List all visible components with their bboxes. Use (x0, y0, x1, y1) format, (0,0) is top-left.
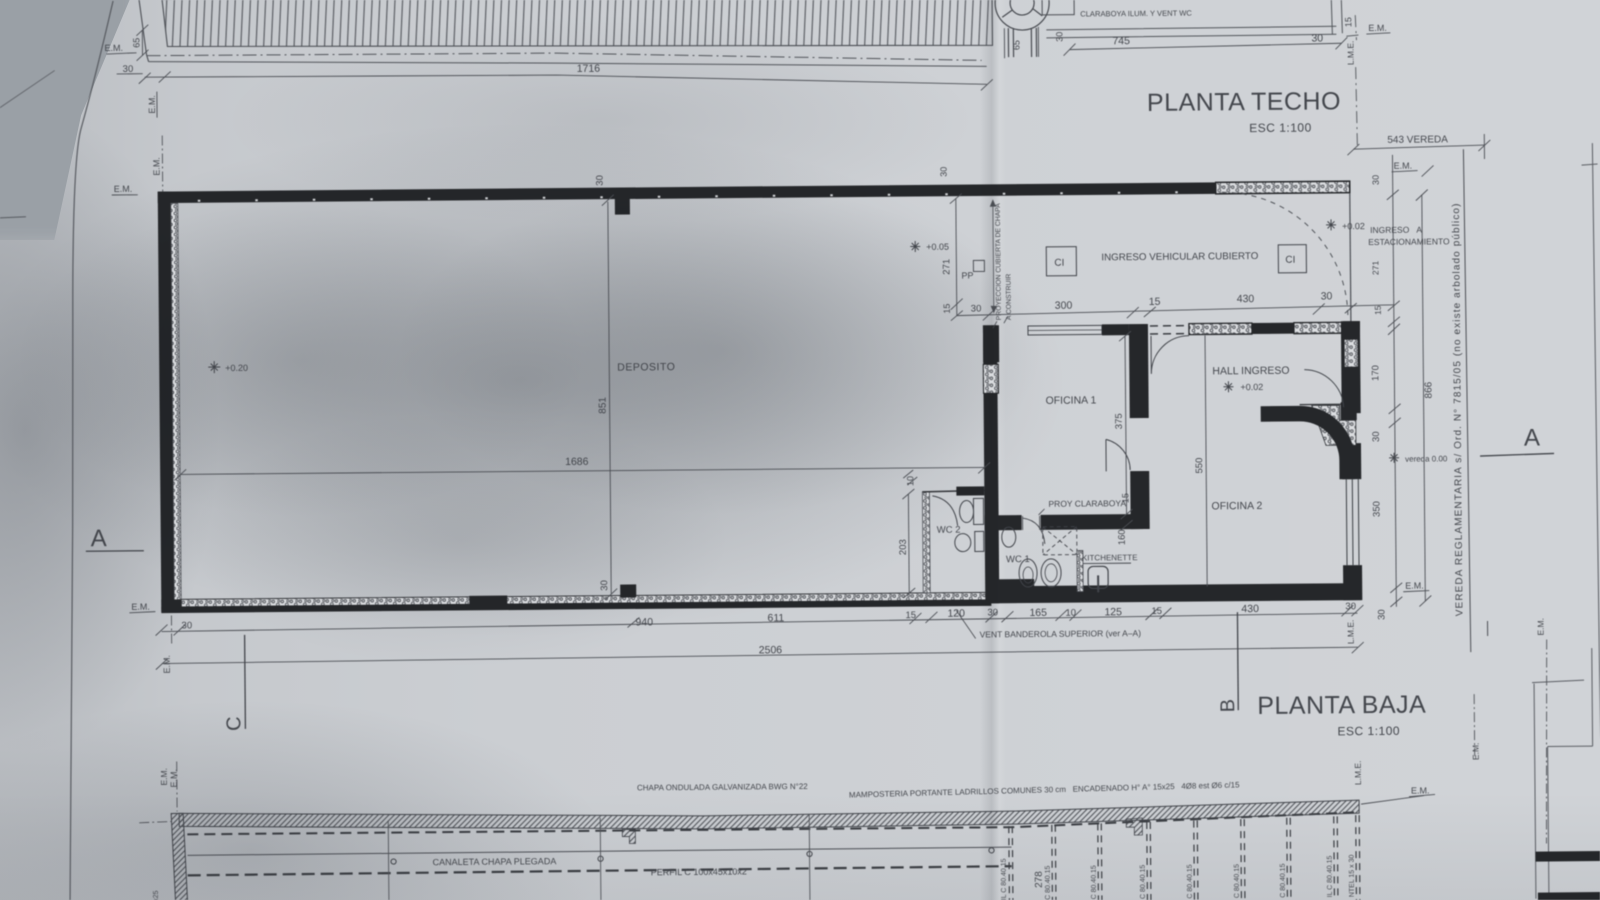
svg-text:E.M.: E.M. (1405, 581, 1424, 591)
svg-text:KITCHENETTE: KITCHENETTE (1082, 553, 1138, 562)
svg-text:CHAPA ONDULADA GALVANIZADA: CHAPA ONDULADA GALVANIZADA BWG N°22 (637, 782, 808, 792)
svg-text:203: 203 (898, 539, 909, 555)
svg-text:15: 15 (1149, 296, 1161, 308)
svg-text:HALL INGRESO: HALL INGRESO (1212, 365, 1289, 378)
svg-text:PERFIL C 100x45x10x2: PERFIL C 100x45x10x2 (651, 866, 747, 877)
svg-text:30: 30 (939, 167, 949, 177)
svg-text:1686: 1686 (565, 456, 589, 468)
svg-text:E.M.: E.M. (1471, 743, 1481, 761)
svg-text:160: 160 (1117, 529, 1128, 545)
svg-text:NTEL 15 x 30: NTEL 15 x 30 (1349, 855, 1356, 898)
svg-text:10: 10 (905, 476, 915, 486)
svg-text:430: 430 (1241, 603, 1259, 615)
svg-text:10: 10 (1065, 608, 1076, 619)
svg-text:C 80.40.15: C 80.40.15 (1187, 864, 1194, 898)
svg-text:C 80.40.15: C 80.40.15 (1045, 865, 1052, 899)
svg-text:+0.02: +0.02 (1342, 221, 1365, 231)
svg-text:IL C 80.40.15: IL C 80.40.15 (1327, 855, 1334, 897)
svg-text:611: 611 (767, 612, 784, 624)
svg-text:+0.02: +0.02 (1240, 382, 1263, 392)
svg-text:15: 15 (1373, 305, 1383, 315)
svg-text:INGRESO A: INGRESO A (1370, 225, 1422, 235)
svg-text:E.M.: E.M. (162, 655, 172, 674)
svg-text:15: 15 (1151, 606, 1162, 617)
svg-text:866: 866 (1423, 381, 1434, 398)
svg-text:A: A (91, 525, 107, 552)
svg-text:CANALETA CHAPA PLEGADA: CANALETA CHAPA PLEGADA (433, 856, 557, 867)
svg-text:ESC 1:100: ESC 1:100 (1249, 121, 1312, 136)
svg-text:15: 15 (942, 304, 952, 314)
svg-text:vereda 0.00: vereda 0.00 (1405, 454, 1448, 463)
svg-text:VEREDA REGLAMENTARIA s/ Ord. N: VEREDA REGLAMENTARIA s/ Ord. N° 7815/05 … (1451, 202, 1466, 616)
svg-text:PLANTA TECHO: PLANTA TECHO (1147, 87, 1341, 117)
svg-text:L.M.E.: L.M.E. (1345, 41, 1355, 66)
svg-text:30: 30 (987, 607, 998, 618)
svg-text:5x25: 5x25 (153, 890, 160, 900)
svg-text:30: 30 (123, 64, 134, 75)
svg-text:1716: 1716 (577, 63, 601, 75)
svg-text:30: 30 (181, 620, 192, 631)
svg-text:15: 15 (1120, 493, 1130, 503)
svg-text:125: 125 (1104, 606, 1122, 618)
svg-text:C 80.40.15: C 80.40.15 (1234, 864, 1241, 898)
svg-text:15: 15 (905, 610, 916, 621)
svg-text:E.M.: E.M. (151, 157, 161, 176)
svg-text:WC 1: WC 1 (1006, 554, 1030, 565)
svg-text:65: 65 (131, 38, 141, 48)
svg-text:30: 30 (1371, 431, 1382, 442)
svg-text:DEPOSITO: DEPOSITO (617, 361, 675, 374)
svg-text:30: 30 (1371, 175, 1381, 185)
svg-text:C 80.40.15: C 80.40.15 (1140, 865, 1147, 899)
svg-text:C 80.40.15: C 80.40.15 (1280, 863, 1287, 897)
svg-text:VENT BANDEROLA SUPERIOR (ve: VENT BANDEROLA SUPERIOR (ver A–A) (980, 628, 1142, 639)
svg-text:2506: 2506 (759, 644, 783, 656)
svg-text:L.M.E.: L.M.E. (1353, 761, 1363, 786)
svg-text:PROY CLARABOYA: PROY CLARABOYA (1048, 498, 1126, 509)
svg-text:165: 165 (1029, 607, 1047, 619)
svg-text:30: 30 (1345, 601, 1356, 612)
svg-text:271: 271 (1370, 260, 1380, 275)
svg-text:30: 30 (1311, 32, 1323, 44)
svg-text:L.M.E.: L.M.E. (1346, 620, 1356, 645)
svg-text:E.M.: E.M. (131, 602, 150, 612)
svg-text:E.M.: E.M. (159, 768, 169, 786)
svg-text:30: 30 (971, 303, 982, 314)
svg-text:375: 375 (1114, 413, 1125, 429)
svg-text:PP: PP (961, 270, 973, 280)
svg-text:745: 745 (1112, 35, 1130, 47)
svg-text:B: B (1217, 699, 1239, 713)
svg-text:E.M.: E.M. (114, 184, 133, 194)
svg-text:15: 15 (1343, 17, 1353, 27)
svg-text:E.M.: E.M. (104, 43, 123, 53)
svg-text:65: 65 (1011, 40, 1021, 50)
svg-text:CI: CI (1285, 255, 1295, 266)
svg-text:E.M.: E.M. (1411, 786, 1430, 796)
svg-text:278: 278 (1034, 871, 1045, 888)
svg-text:CLARABOYA ILUM. Y VENT WC: CLARABOYA ILUM. Y VENT WC (1080, 9, 1192, 19)
svg-text:300: 300 (1055, 300, 1073, 312)
svg-text:E.M.: E.M. (147, 95, 157, 114)
svg-text:INGRESO VEHICULAR CUBIERTO: INGRESO VEHICULAR CUBIERTO (1101, 251, 1258, 263)
svg-text:851: 851 (598, 397, 609, 414)
svg-text:PROYECCION CUBIERTA DE CHAPA: PROYECCION CUBIERTA DE CHAPA (995, 203, 1003, 321)
svg-text:E.M.: E.M. (1393, 161, 1412, 171)
svg-text:350: 350 (1371, 501, 1382, 517)
svg-text:C 80.40.15: C 80.40.15 (1091, 865, 1098, 899)
svg-text:271: 271 (941, 259, 952, 275)
svg-text:430: 430 (1237, 293, 1255, 305)
svg-text:A: A (1524, 425, 1540, 452)
svg-text:940: 940 (635, 616, 653, 628)
svg-text:170: 170 (1370, 365, 1381, 381)
svg-text:OFICINA 1: OFICINA 1 (1046, 394, 1097, 406)
svg-text:550: 550 (1194, 458, 1205, 474)
svg-text:C: C (223, 716, 245, 731)
svg-text:30: 30 (599, 580, 610, 591)
svg-text:+0.05: +0.05 (926, 242, 949, 252)
svg-text:E.M.: E.M. (1535, 618, 1545, 636)
svg-text:IL C 80.40.15: IL C 80.40.15 (1001, 858, 1008, 900)
svg-text:PLANTA BAJA: PLANTA BAJA (1257, 691, 1426, 720)
svg-text:30: 30 (595, 175, 606, 186)
svg-text:30: 30 (1376, 609, 1387, 620)
svg-text:ESC 1:100: ESC 1:100 (1337, 724, 1400, 739)
svg-text:+0.20: +0.20 (225, 363, 248, 373)
svg-text:120: 120 (947, 608, 965, 620)
svg-text:WC 2: WC 2 (937, 525, 961, 536)
svg-text:543 VEREDA: 543 VEREDA (1387, 134, 1448, 146)
svg-text:OFICINA 2: OFICINA 2 (1211, 500, 1262, 512)
svg-text:MAMPOSTERIA PORTANTE LADRILL: MAMPOSTERIA PORTANTE LADRILLOS COMUNES 3… (849, 780, 1240, 799)
svg-text:ESTACIONAMIENTO: ESTACIONAMIENTO (1368, 236, 1450, 247)
svg-text:30: 30 (1054, 32, 1064, 42)
svg-text:E.M.: E.M. (1368, 23, 1387, 33)
svg-text:CI: CI (1054, 258, 1064, 269)
svg-text:A CONSTRUIR: A CONSTRUIR (1005, 274, 1012, 321)
svg-text:30: 30 (1321, 290, 1333, 302)
svg-text:E.M.: E.M. (169, 769, 179, 788)
